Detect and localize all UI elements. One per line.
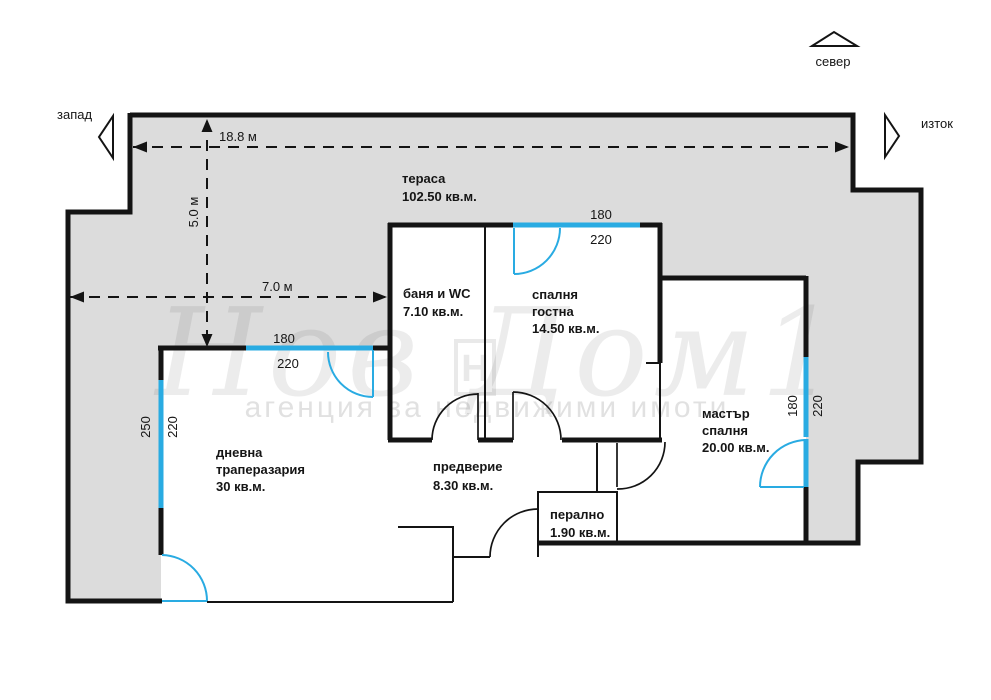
north-arrow-icon	[812, 32, 857, 46]
west-arrow-icon	[99, 116, 113, 158]
bathroom-size: 7.10 кв.м.	[403, 304, 463, 319]
floor-plan-page: Нов Дом1 Н агенция за недвижими имоти	[0, 0, 991, 700]
door-living-corner-arc	[162, 555, 207, 601]
guest-window-height: 220	[590, 232, 612, 247]
living-top-window-width: 180	[273, 331, 295, 346]
hallway-name: предверие	[433, 459, 503, 474]
east-label: изток	[921, 116, 953, 131]
master-bedroom-size: 20.00 кв.м.	[702, 440, 769, 455]
guest-window-width: 180	[590, 207, 612, 222]
living-room-name-line2: траперазария	[216, 462, 305, 477]
living-left-window-height: 220	[165, 416, 180, 438]
laundry-name: перално	[550, 507, 604, 522]
hallway-size: 8.30 кв.м.	[433, 478, 493, 493]
guest-bedroom-size: 14.50 кв.м.	[532, 321, 599, 336]
terrace-name: тераса	[402, 171, 446, 186]
dimension-terrace-left-label: 7.0 м	[262, 279, 293, 294]
door-master-arc	[617, 442, 665, 489]
watermark: Нов Дом1 Н агенция за недвижими имоти	[153, 282, 844, 424]
dimension-terrace-width-label: 18.8 м	[219, 129, 257, 144]
master-bedroom-name-line2: спалня	[702, 423, 748, 438]
floor-plan-canvas: Нов Дом1 Н агенция за недвижими имоти	[0, 0, 991, 700]
door-hallway-arc	[490, 509, 538, 557]
living-top-window-height: 220	[277, 356, 299, 371]
north-label: север	[816, 54, 851, 69]
master-window-width: 180	[785, 395, 800, 417]
laundry-size: 1.90 кв.м.	[550, 525, 610, 540]
living-room-name-line1: дневна	[216, 445, 263, 460]
terrace-size: 102.50 кв.м.	[402, 189, 477, 204]
master-bedroom-name-line1: мастър	[702, 406, 750, 421]
door-guest-terrace-arc	[514, 228, 560, 274]
east-arrow-icon	[885, 115, 899, 157]
living-room-size: 30 кв.м.	[216, 479, 265, 494]
dimension-terrace-depth-label: 5.0 м	[186, 197, 201, 228]
guest-bedroom-name-line1: спалня	[532, 287, 578, 302]
living-left-window-width: 250	[138, 416, 153, 438]
master-window-height: 220	[810, 395, 825, 417]
wall-hallway-notch	[398, 527, 453, 602]
west-label: запад	[57, 107, 92, 122]
watermark-tagline: агенция за недвижими имоти	[245, 391, 730, 424]
guest-bedroom-name-line2: гостна	[532, 304, 574, 319]
bathroom-name: баня и WC	[403, 286, 471, 301]
